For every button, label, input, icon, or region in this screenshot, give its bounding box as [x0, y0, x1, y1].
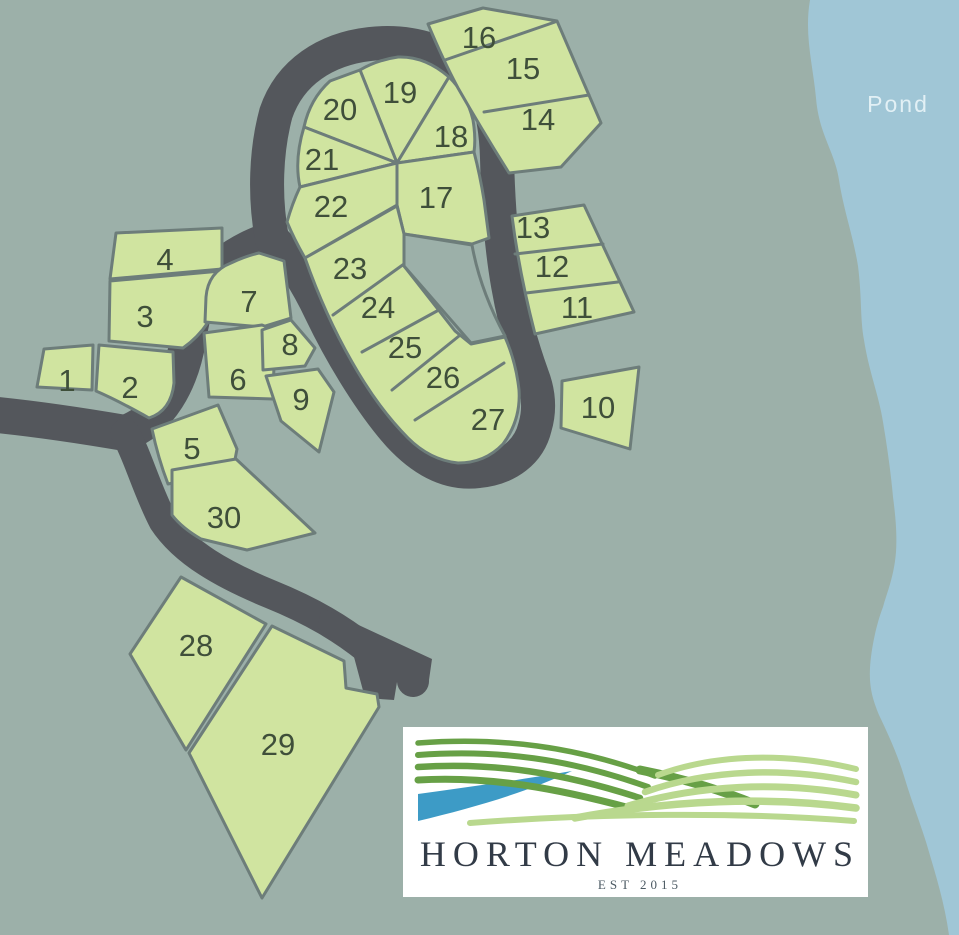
lot-label-3: 3 [136, 299, 153, 334]
lot-label-30: 30 [207, 500, 241, 535]
lot-label-5: 5 [183, 431, 200, 466]
plat-map-page: Pond [0, 0, 959, 935]
lot-label-22: 22 [314, 189, 348, 224]
lot-label-21: 21 [305, 142, 339, 177]
lot-label-6: 6 [229, 362, 246, 397]
pond-label: Pond [867, 91, 929, 117]
lot-label-16: 16 [462, 20, 496, 55]
lot-label-10: 10 [581, 390, 615, 425]
lot-label-20: 20 [323, 92, 357, 127]
lot-label-12: 12 [535, 249, 569, 284]
lot-label-17: 17 [419, 180, 453, 215]
lot-label-11: 11 [561, 290, 593, 325]
lot-label-13: 13 [516, 210, 550, 245]
site-map: Pond [0, 0, 959, 935]
lot-label-4: 4 [156, 242, 173, 277]
lot-label-27: 27 [471, 402, 505, 437]
lot-label-18: 18 [434, 119, 468, 154]
lot-label-29: 29 [261, 727, 295, 762]
lot-label-25: 25 [388, 330, 422, 365]
lot-label-2: 2 [121, 370, 138, 405]
lot-label-24: 24 [361, 290, 395, 325]
logo: HORTON MEADOWS EST 2015 [403, 727, 868, 897]
lot-label-1: 1 [58, 363, 75, 398]
lot-label-26: 26 [426, 360, 460, 395]
lot-label-7: 7 [240, 284, 257, 319]
lot-label-14: 14 [521, 102, 555, 137]
lot-label-8: 8 [281, 327, 298, 362]
lot-label-15: 15 [506, 51, 540, 86]
lot-label-19: 19 [383, 75, 417, 110]
lot-label-23: 23 [333, 251, 367, 286]
lot-label-28: 28 [179, 628, 213, 663]
logo-title: HORTON MEADOWS [420, 834, 860, 874]
lot-label-9: 9 [292, 382, 309, 417]
logo-established: EST 2015 [598, 877, 682, 892]
